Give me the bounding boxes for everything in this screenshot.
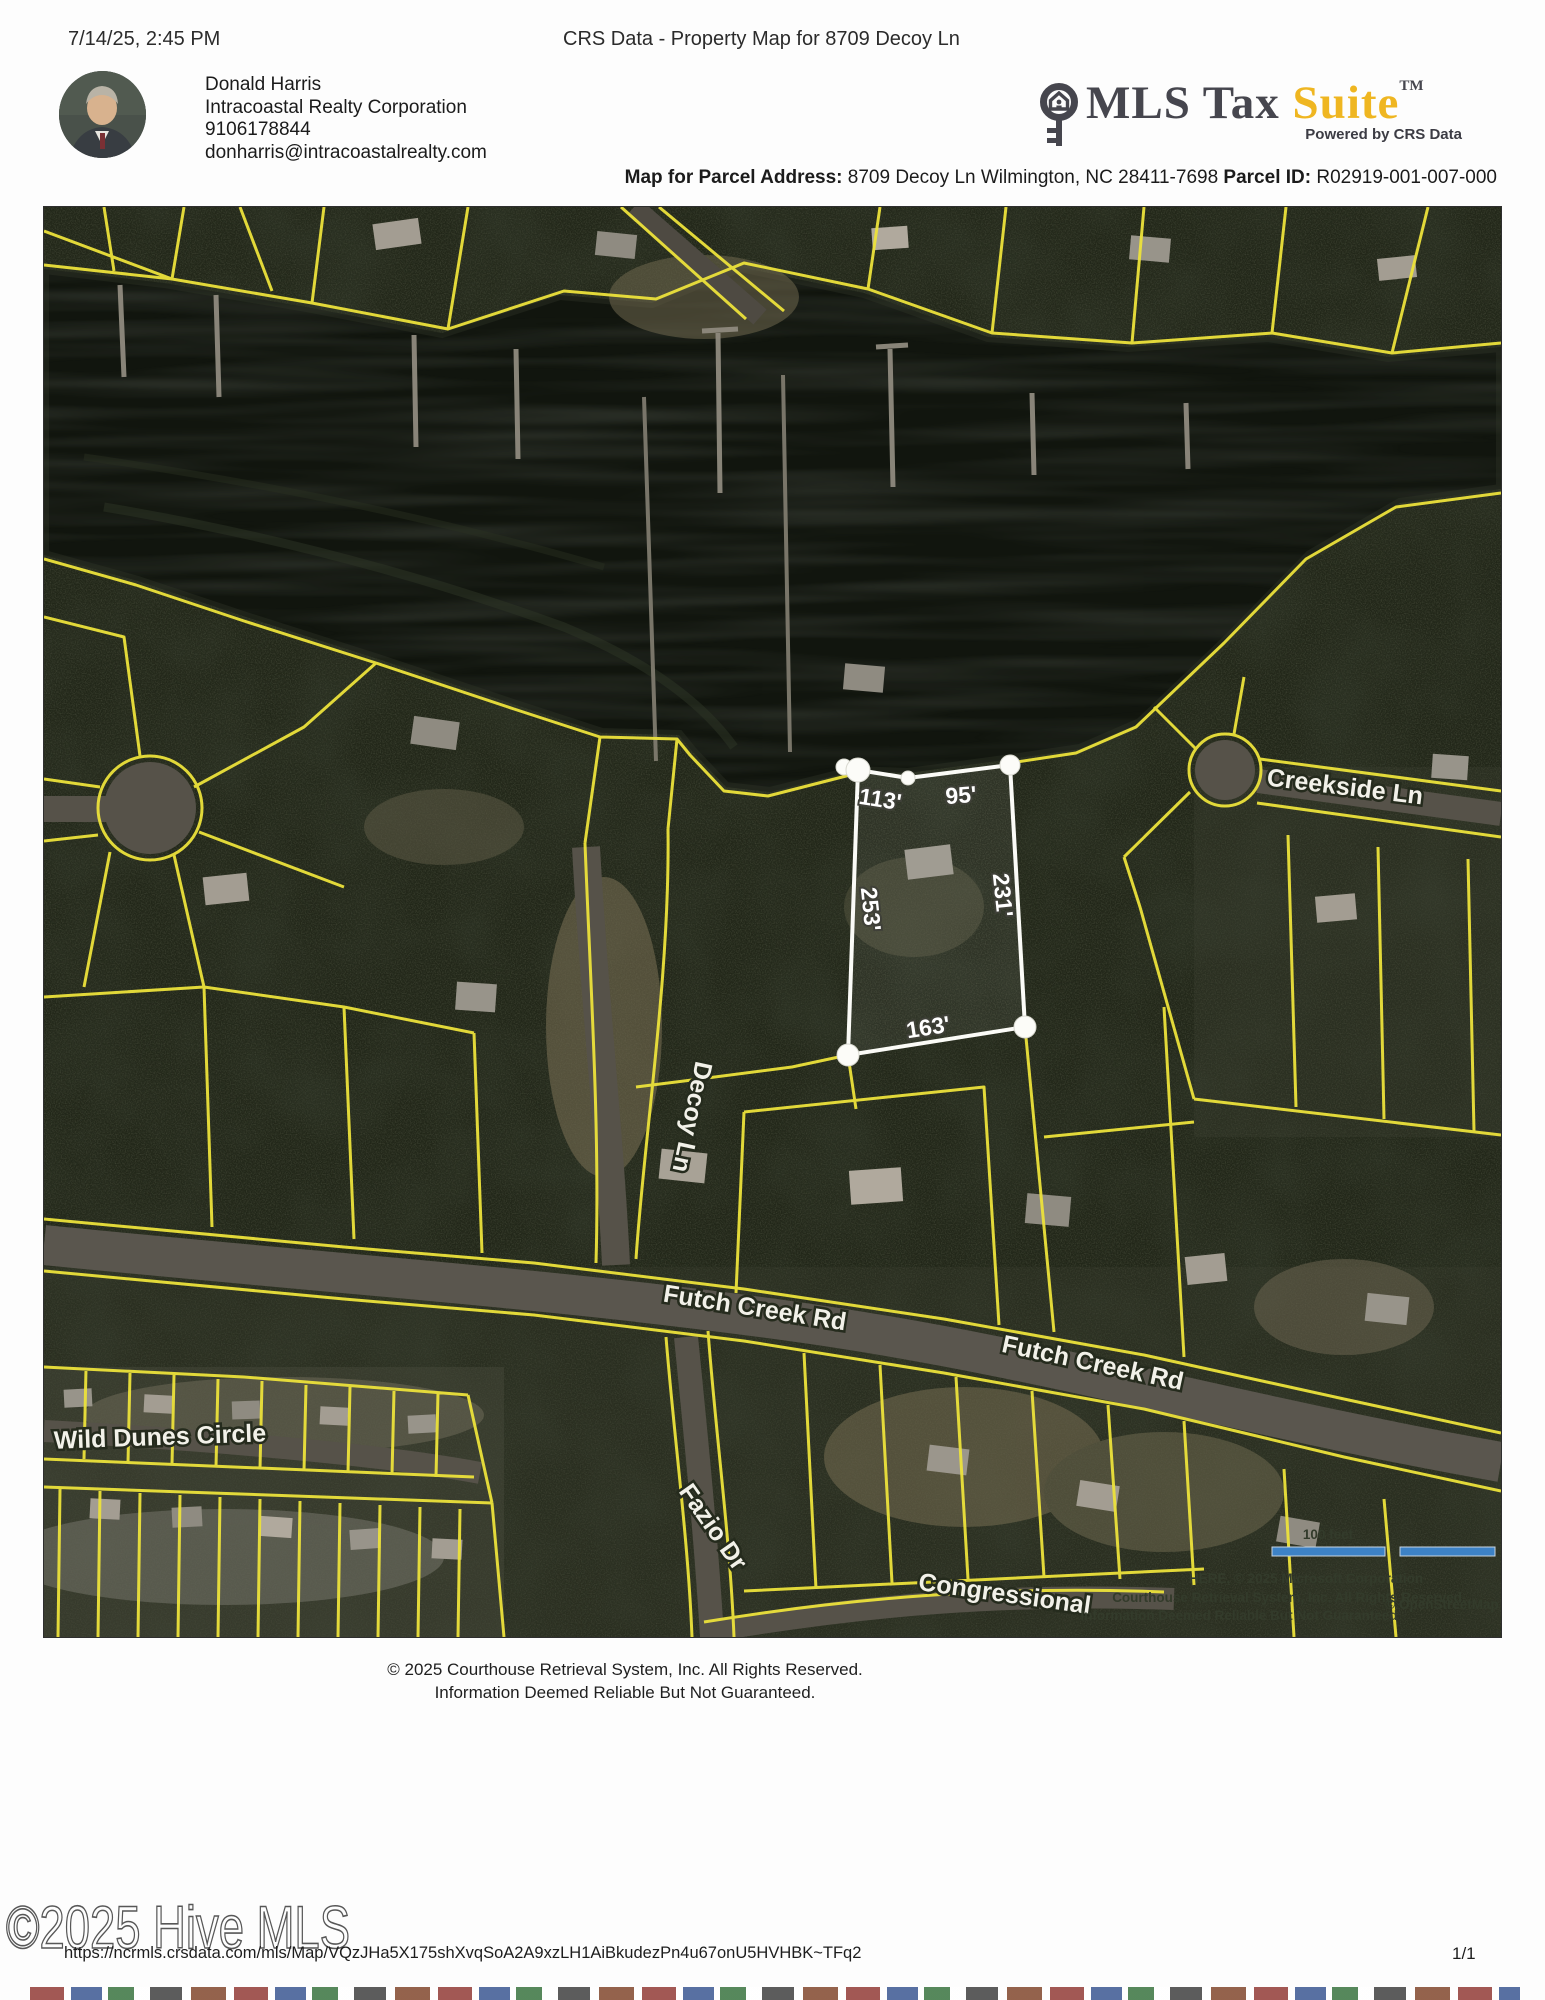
parcel-address-line: Map for Parcel Address: 8709 Decoy Ln Wi… <box>625 167 1497 189</box>
agent-phone: 9106178844 <box>205 119 487 142</box>
aerial-map-canvas: 113' 95' 253' 231' 163' Creekside Ln Dec… <box>44 207 1501 1637</box>
agent-photo <box>59 71 146 158</box>
attribution-line1: HERE, © 2025 Microsoft Corporation <box>1189 1571 1423 1586</box>
print-timestamp: 7/14/25, 2:45 PM <box>68 28 220 51</box>
address-label: Map for Parcel Address: <box>625 167 843 188</box>
logo-suite: Suite <box>1293 77 1400 129</box>
agent-photo-image <box>59 71 146 158</box>
attribution-line3: Information Deemed Reliable But Not Guar… <box>1080 1608 1397 1623</box>
print-title: CRS Data - Property Map for 8709 Decoy L… <box>563 28 960 51</box>
copyright-footer: © 2025 Courthouse Retrieval System, Inc.… <box>275 1658 975 1704</box>
address-value: 8709 Decoy Ln Wilmington, NC 28411-7698 <box>843 167 1224 188</box>
parcel-id-label: Parcel ID: <box>1223 167 1311 188</box>
scale-bar-left <box>1272 1547 1385 1556</box>
print-url: https://ncrmls.crsdata.com/mls/Map/VQzJH… <box>64 1944 861 1963</box>
cutoff-text-strip <box>30 1987 1520 2000</box>
dimension-left: 253' <box>856 886 886 932</box>
print-page: 7/14/25, 2:45 PM CRS Data - Property Map… <box>0 0 1545 2000</box>
logo-tm: TM <box>1399 78 1423 94</box>
dimension-top-right: 95' <box>945 781 978 809</box>
culdesac-right-pavement <box>1195 740 1255 800</box>
subject-parcel[interactable]: 113' 95' 253' 231' 163' <box>836 755 1036 1066</box>
copyright-line1: © 2025 Courthouse Retrieval System, Inc.… <box>275 1658 975 1681</box>
scale-bar-right <box>1400 1547 1495 1556</box>
page-number: 1/1 <box>1452 1944 1476 1964</box>
logo-tagline: Powered by CRS Data <box>1180 126 1462 143</box>
agent-company: Intracoastal Realty Corporation <box>205 97 487 120</box>
agent-info: Donald Harris Intracoastal Realty Corpor… <box>205 74 487 164</box>
dimension-right: 231' <box>988 872 1018 918</box>
mls-tax-suite-logo <box>1036 80 1082 150</box>
agent-email: donharris@intracoastalrealty.com <box>205 142 487 165</box>
culdesac-left-pavement <box>104 762 196 854</box>
logo-wordmark: MLS Tax SuiteTM <box>1086 76 1424 130</box>
property-map[interactable]: 113' 95' 253' 231' 163' Creekside Ln Dec… <box>43 206 1502 1638</box>
scale-label: 100 feet <box>1303 1527 1354 1542</box>
agent-name: Donald Harris <box>205 74 487 97</box>
copyright-line2: Information Deemed Reliable But Not Guar… <box>275 1681 975 1704</box>
key-house-icon <box>1036 80 1082 150</box>
logo-mls-tax: MLS Tax <box>1086 77 1280 129</box>
parcel-id-value: R02919-001-007-000 <box>1311 167 1497 188</box>
attribution-osm: © OpenStreetMap <box>1385 1597 1498 1612</box>
